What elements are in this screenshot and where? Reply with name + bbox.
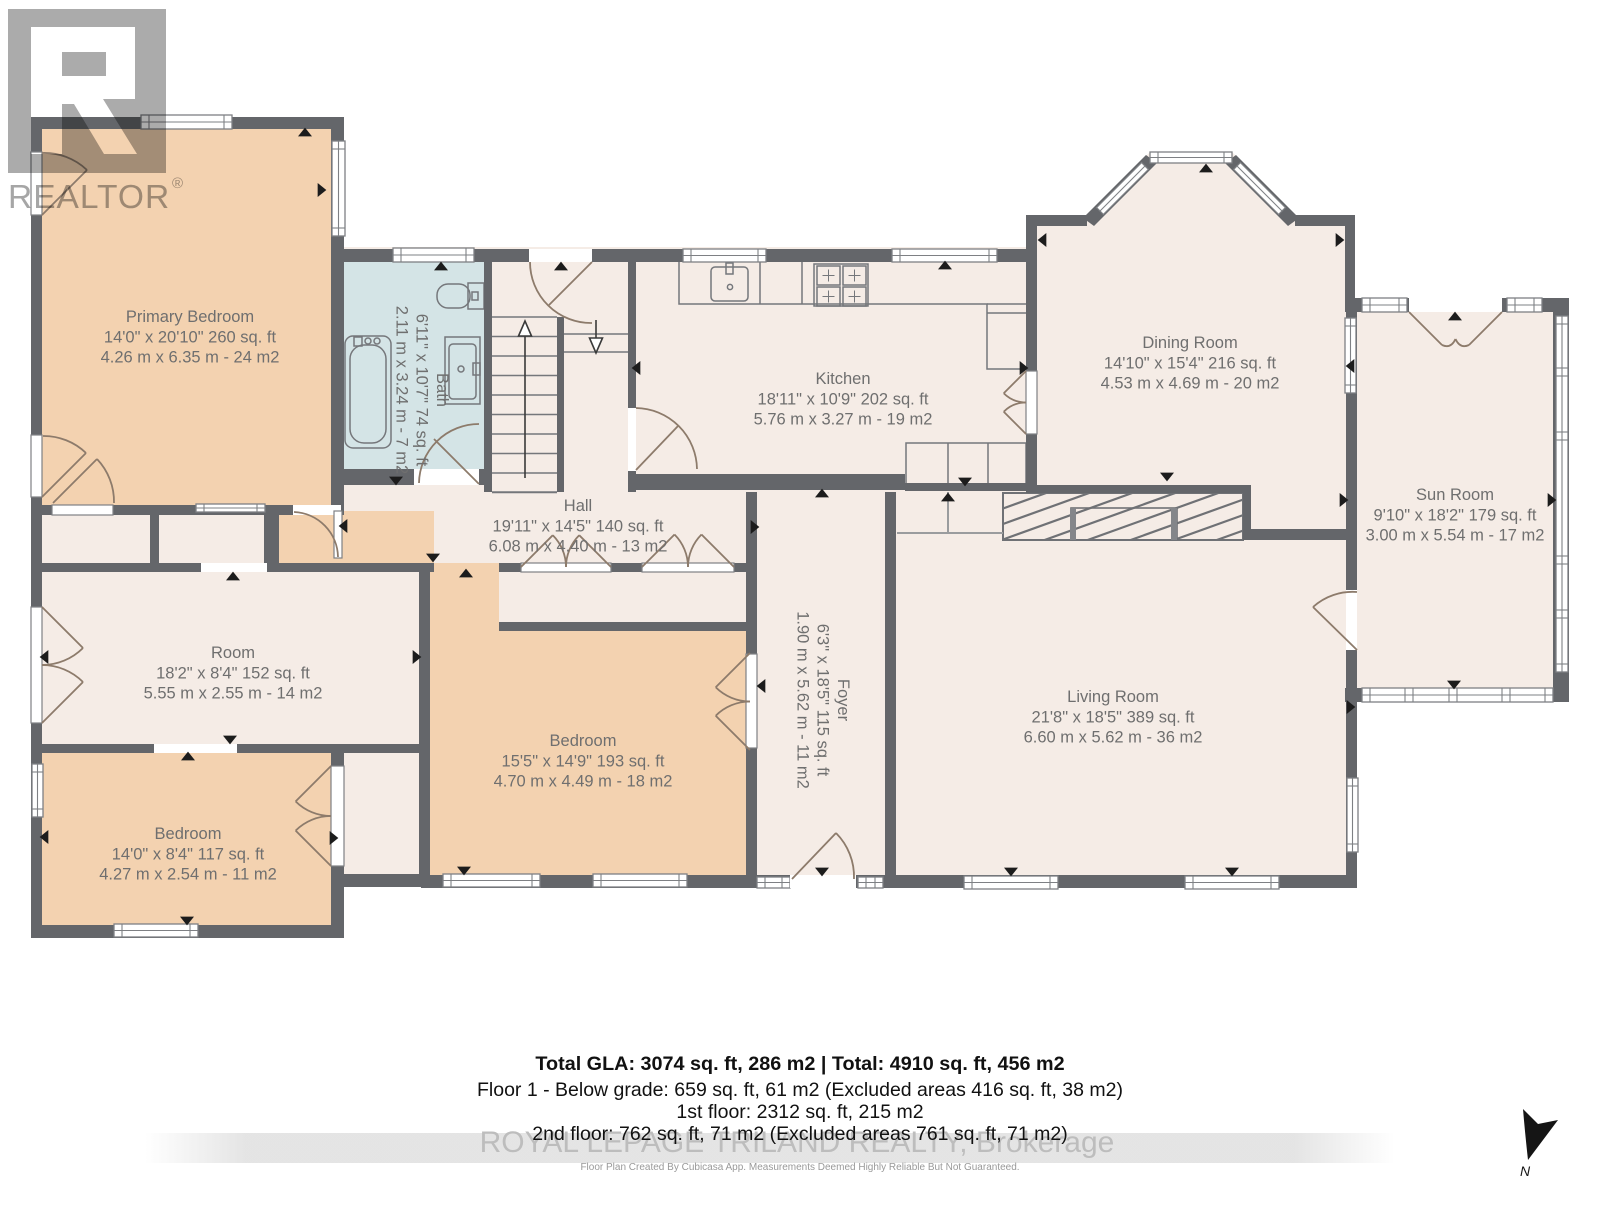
svg-text:4.70 m x 4.49 m - 18 m2: 4.70 m x 4.49 m - 18 m2 bbox=[494, 773, 673, 791]
svg-text:REALTOR: REALTOR bbox=[8, 179, 170, 216]
svg-text:6.60 m x 5.62 m - 36 m2: 6.60 m x 5.62 m - 36 m2 bbox=[1024, 729, 1203, 747]
svg-text:Hall: Hall bbox=[564, 497, 592, 515]
svg-text:9'10" x 18'2" 179 sq. ft: 9'10" x 18'2" 179 sq. ft bbox=[1374, 506, 1537, 524]
svg-text:1st floor: 2312 sq. ft, 215 m2: 1st floor: 2312 sq. ft, 215 m2 bbox=[676, 1101, 923, 1123]
svg-text:Living Room: Living Room bbox=[1067, 688, 1159, 706]
svg-text:4.26 m x 6.35 m - 24 m2: 4.26 m x 6.35 m - 24 m2 bbox=[101, 349, 280, 367]
svg-text:Room: Room bbox=[211, 644, 255, 662]
svg-text:Dining Room: Dining Room bbox=[1142, 334, 1237, 352]
svg-text:Bedroom: Bedroom bbox=[155, 825, 222, 843]
svg-text:Sun Room: Sun Room bbox=[1416, 486, 1494, 504]
svg-text:Floor Plan Created By Cubicasa: Floor Plan Created By Cubicasa App. Meas… bbox=[580, 1162, 1019, 1173]
svg-text:21'8" x 18'5" 389 sq. ft: 21'8" x 18'5" 389 sq. ft bbox=[1032, 708, 1195, 726]
svg-text:Foyer: Foyer bbox=[834, 679, 852, 722]
svg-text:1.90 m x 5.62 m - 11 m2: 1.90 m x 5.62 m - 11 m2 bbox=[793, 611, 811, 789]
svg-text:6.08 m x 4.40 m - 13 m2: 6.08 m x 4.40 m - 13 m2 bbox=[489, 538, 668, 556]
svg-text:N: N bbox=[1520, 1163, 1531, 1179]
svg-text:6'11" x 10'7" 74 sq. ft: 6'11" x 10'7" 74 sq. ft bbox=[413, 314, 431, 467]
svg-text:Primary Bedroom: Primary Bedroom bbox=[126, 308, 254, 326]
svg-text:4.53 m x 4.69 m - 20 m2: 4.53 m x 4.69 m - 20 m2 bbox=[1101, 375, 1280, 393]
svg-text:Total GLA: 3074 sq. ft, 286 m2: Total GLA: 3074 sq. ft, 286 m2 | Total: … bbox=[535, 1053, 1064, 1075]
svg-text:18'11" x 10'9" 202 sq. ft: 18'11" x 10'9" 202 sq. ft bbox=[758, 390, 929, 408]
svg-text:14'0" x 8'4" 117 sq. ft: 14'0" x 8'4" 117 sq. ft bbox=[112, 845, 265, 863]
svg-text:18'2" x 8'4" 152 sq. ft: 18'2" x 8'4" 152 sq. ft bbox=[156, 664, 310, 682]
svg-text:2.11 m x 3.24 m - 7 m2: 2.11 m x 3.24 m - 7 m2 bbox=[392, 306, 410, 474]
svg-text:5.76 m x 3.27 m - 19 m2: 5.76 m x 3.27 m - 19 m2 bbox=[754, 411, 933, 429]
svg-text:19'11" x 14'5" 140 sq. ft: 19'11" x 14'5" 140 sq. ft bbox=[493, 517, 664, 535]
svg-text:14'0" x 20'10" 260 sq. ft: 14'0" x 20'10" 260 sq. ft bbox=[104, 328, 277, 346]
svg-text:3.00 m x 5.54 m - 17 m2: 3.00 m x 5.54 m - 17 m2 bbox=[1366, 527, 1545, 545]
svg-text:15'5" x 14'9" 193 sq. ft: 15'5" x 14'9" 193 sq. ft bbox=[502, 752, 665, 770]
svg-text:Kitchen: Kitchen bbox=[815, 370, 870, 388]
svg-text:4.27 m x 2.54 m - 11 m2: 4.27 m x 2.54 m - 11 m2 bbox=[99, 866, 277, 884]
svg-text:5.55 m x 2.55 m - 14 m2: 5.55 m x 2.55 m - 14 m2 bbox=[144, 685, 323, 703]
svg-text:®: ® bbox=[172, 175, 183, 192]
svg-text:14'10" x 15'4" 216 sq. ft: 14'10" x 15'4" 216 sq. ft bbox=[1104, 354, 1277, 372]
svg-text:2nd floor: 762 sq. ft, 71 m2 (: 2nd floor: 762 sq. ft, 71 m2 (Excluded a… bbox=[532, 1123, 1067, 1145]
svg-text:Bath: Bath bbox=[433, 373, 451, 407]
svg-text:Bedroom: Bedroom bbox=[550, 732, 617, 750]
svg-text:Floor 1 - Below grade: 659 sq.: Floor 1 - Below grade: 659 sq. ft, 61 m2… bbox=[477, 1079, 1123, 1101]
svg-text:6'3" x 18'5" 115 sq. ft: 6'3" x 18'5" 115 sq. ft bbox=[814, 624, 832, 777]
